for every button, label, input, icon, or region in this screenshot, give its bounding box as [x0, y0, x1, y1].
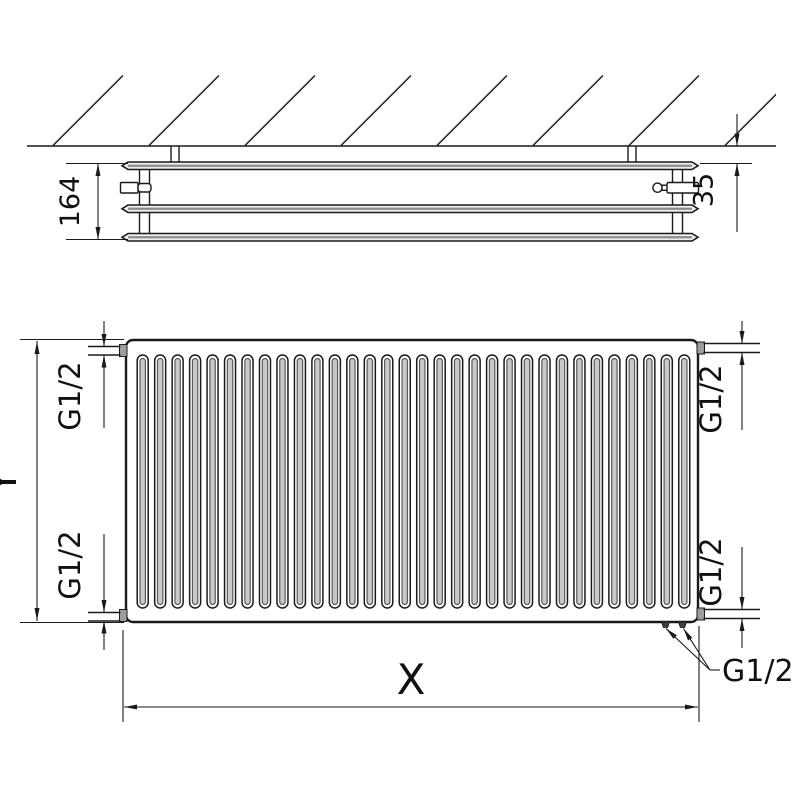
- bottom-connection-left: [662, 622, 670, 628]
- connecting-pipes: [140, 168, 683, 235]
- dimension-depth-164: 164: [55, 164, 128, 240]
- wall-brackets: [171, 146, 636, 163]
- wall-hatching-icon: [53, 76, 795, 146]
- left-valve-connection: [121, 183, 152, 194]
- front-view: G1/2 G1/2 G1/2 G1/2 Y X G1/2: [0, 321, 794, 722]
- radiator-fins: [137, 355, 690, 608]
- connection-label-bottom-left: G1/2: [53, 530, 87, 599]
- width-dimension-label: X: [397, 655, 426, 704]
- radiator-technical-drawing: 164 35: [0, 0, 800, 800]
- radiator-panels: [122, 162, 698, 241]
- connection-label-top-right: G1/2: [694, 364, 728, 433]
- dimension-width-X: X: [123, 626, 699, 722]
- connection-label-bottom-callout: G1/2: [722, 654, 794, 689]
- wall-distance-dimension-label: 35: [689, 173, 720, 207]
- depth-dimension-label: 164: [55, 176, 86, 228]
- bottom-connection-right: [679, 622, 687, 628]
- connection-label-bottom-right: G1/2: [694, 537, 728, 606]
- side-view: 164 35: [27, 76, 795, 242]
- bottom-connections: G1/2: [662, 622, 794, 689]
- height-dimension-label: Y: [0, 469, 26, 495]
- connection-label-top-left: G1/2: [53, 361, 87, 430]
- dimension-wall-distance-35: 35: [689, 114, 753, 232]
